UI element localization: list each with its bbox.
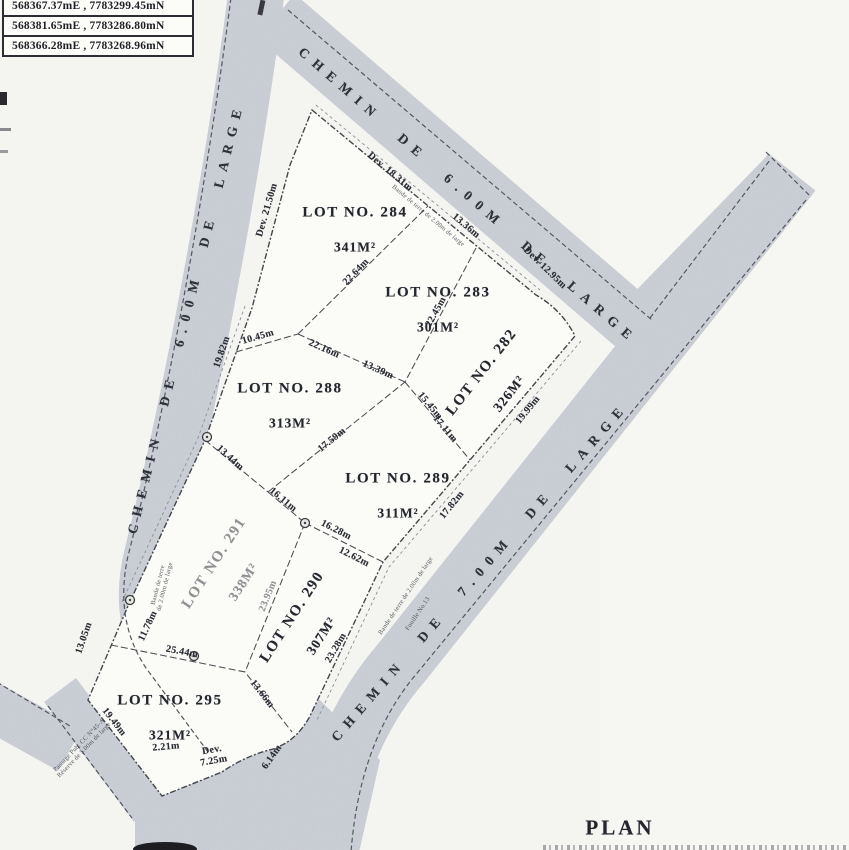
lot-288-name: LOT NO. 288 xyxy=(237,380,342,396)
lot-284-name: LOT NO. 284 xyxy=(302,204,407,220)
lot-288-area: 313M² xyxy=(269,416,311,431)
lot-284-area: 341M² xyxy=(334,240,376,255)
lot-295-name: LOT NO. 295 xyxy=(117,692,222,708)
survey-marker-icon xyxy=(203,433,212,442)
scan-smudge xyxy=(0,128,11,131)
lot-288-label: LOT NO. 288 313M² xyxy=(237,363,342,434)
lot-289-name: LOT NO. 289 xyxy=(345,470,450,486)
plan-title: PLAN xyxy=(585,816,654,841)
scan-smudge xyxy=(0,92,7,105)
dim-2-21: 2.21m xyxy=(152,740,180,753)
cutoff-text-strip xyxy=(543,845,849,850)
survey-plan-page: 568367.37mE , 7783299.45mN 568381.65mE ,… xyxy=(0,0,849,850)
coordinate-row: 568366.28mE , 7783268.96mN xyxy=(4,35,192,55)
lot-295-label: LOT NO. 295 321M² xyxy=(117,675,222,746)
lot-289-area: 311M² xyxy=(377,506,418,521)
scan-smudge xyxy=(0,150,8,153)
coordinate-row: 568367.37mE , 7783299.45mN xyxy=(4,0,192,15)
lot-284-label: LOT NO. 284 341M² xyxy=(302,187,407,258)
coordinates-table: 568367.37mE , 7783299.45mN 568381.65mE ,… xyxy=(2,0,194,57)
coordinate-row: 568381.65mE , 7783286.80mN xyxy=(4,15,192,35)
survey-marker-icon xyxy=(126,596,135,605)
survey-marker-icon xyxy=(301,519,310,528)
lot-289-label: LOT NO. 289 311M² xyxy=(345,453,450,524)
paper-shade-right xyxy=(600,0,849,850)
